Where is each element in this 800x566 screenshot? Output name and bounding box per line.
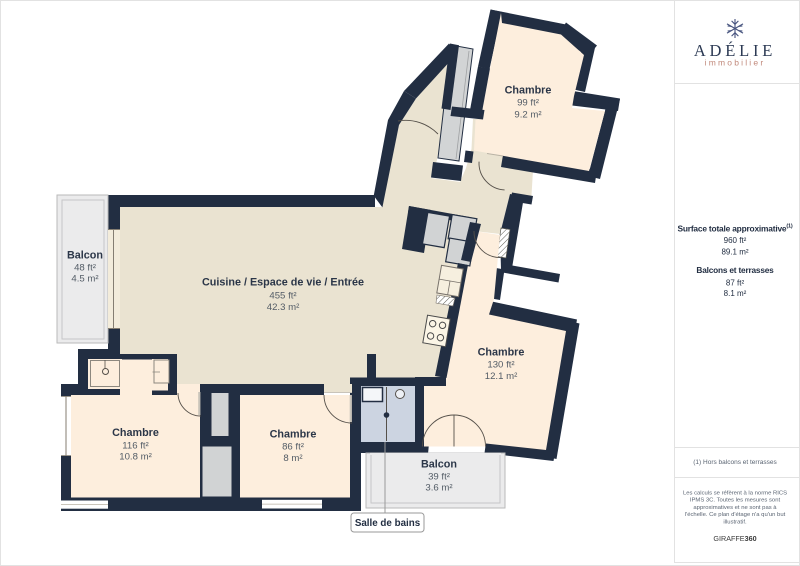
- svg-text:Surface totale approximative(1: Surface totale approximative(1): [677, 224, 792, 234]
- svg-text:Balcon: Balcon: [421, 459, 457, 471]
- svg-text:8 m²: 8 m²: [283, 453, 303, 464]
- svg-text:Chambre: Chambre: [505, 85, 552, 97]
- svg-text:455 ft²: 455 ft²: [269, 291, 297, 302]
- svg-text:4.5 m²: 4.5 m²: [71, 274, 99, 285]
- svg-text:immobilier: immobilier: [705, 58, 766, 68]
- svg-text:960 ft²: 960 ft²: [724, 236, 747, 245]
- svg-text:130 ft²: 130 ft²: [487, 360, 515, 371]
- svg-text:87 ft²: 87 ft²: [726, 279, 745, 288]
- svg-text:10.8 m²: 10.8 m²: [119, 452, 152, 463]
- svg-text:Chambre: Chambre: [112, 427, 159, 439]
- svg-text:39 ft²: 39 ft²: [428, 472, 451, 483]
- svg-text:89.1 m²: 89.1 m²: [721, 248, 748, 257]
- svg-text:Les calculs se réfèrent à la n: Les calculs se réfèrent à la norme RICS: [683, 491, 787, 497]
- svg-text:Balcon: Balcon: [67, 250, 103, 262]
- svg-text:8.1 m²: 8.1 m²: [724, 289, 747, 298]
- svg-text:Salle de bains: Salle de bains: [355, 518, 421, 529]
- svg-text:99 ft²: 99 ft²: [517, 98, 540, 109]
- svg-text:Chambre: Chambre: [270, 429, 317, 441]
- svg-text:86 ft²: 86 ft²: [282, 442, 305, 453]
- svg-text:116 ft²: 116 ft²: [122, 441, 149, 452]
- svg-text:IPMS 3C. Toutes les mesures so: IPMS 3C. Toutes les mesures sont: [690, 498, 781, 504]
- svg-text:Balcons et terrasses: Balcons et terrasses: [696, 265, 774, 275]
- svg-text:illustratif.: illustratif.: [723, 519, 747, 525]
- svg-text:l'échelle. Ce plan d'étage n'a: l'échelle. Ce plan d'étage n'a qu'un but: [685, 512, 786, 518]
- svg-text:9.2 m²: 9.2 m²: [514, 110, 542, 121]
- svg-text:12.1 m²: 12.1 m²: [485, 371, 518, 382]
- svg-text:3.6 m²: 3.6 m²: [425, 483, 453, 494]
- svg-text:GIRAFFE360: GIRAFFE360: [713, 534, 756, 543]
- svg-text:42.3 m²: 42.3 m²: [267, 302, 300, 313]
- svg-text:48 ft²: 48 ft²: [74, 263, 97, 274]
- svg-text:Chambre: Chambre: [478, 347, 525, 359]
- svg-text:approximatives et ne sont pas: approximatives et ne sont pas à: [693, 505, 777, 511]
- svg-text:Cuisine / Espace de vie / Entr: Cuisine / Espace de vie / Entrée: [202, 277, 364, 289]
- svg-text:(1) Hors balcons et terrasses: (1) Hors balcons et terrasses: [693, 459, 777, 466]
